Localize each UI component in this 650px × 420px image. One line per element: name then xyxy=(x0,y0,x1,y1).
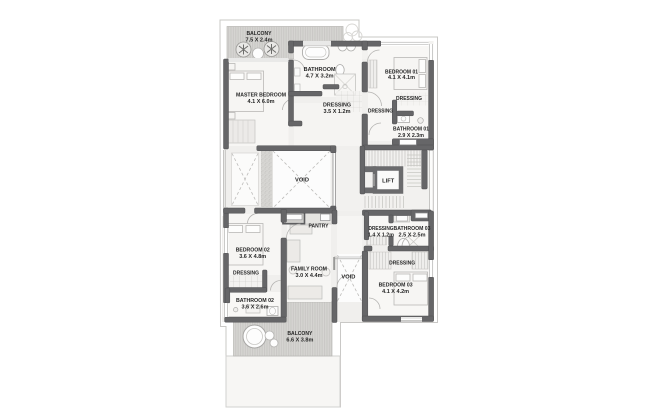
svg-text:VOID: VOID xyxy=(341,275,355,281)
svg-text:BEDROOM 03: BEDROOM 03 xyxy=(379,283,413,289)
svg-text:3.6 X 4.8m: 3.6 X 4.8m xyxy=(239,254,266,260)
svg-text:DRESSING: DRESSING xyxy=(369,226,394,232)
svg-text:1.4 X 1.2m: 1.4 X 1.2m xyxy=(368,233,394,239)
svg-text:3.0 X 4.4m: 3.0 X 4.4m xyxy=(296,273,323,279)
svg-text:4.1 X 6.0m: 4.1 X 6.0m xyxy=(248,99,275,105)
svg-text:BALCONY: BALCONY xyxy=(287,331,312,337)
svg-text:BALCONY: BALCONY xyxy=(247,31,272,37)
svg-text:3.6 X 2.6m: 3.6 X 2.6m xyxy=(242,305,269,311)
svg-text:2.5 X 2.5m: 2.5 X 2.5m xyxy=(399,233,426,239)
svg-text:BATHROOM: BATHROOM xyxy=(304,67,336,73)
svg-text:BATHROOM 02: BATHROOM 02 xyxy=(236,298,274,304)
svg-text:DRESSING: DRESSING xyxy=(389,261,415,267)
svg-text:DRESSING: DRESSING xyxy=(368,109,393,115)
svg-text:6.6 X 3.8m: 6.6 X 3.8m xyxy=(286,338,313,344)
svg-text:BEDROOM 02: BEDROOM 02 xyxy=(236,248,270,254)
svg-text:DRESSING: DRESSING xyxy=(323,103,351,109)
svg-text:MASTER BEDROOM: MASTER BEDROOM xyxy=(236,93,286,99)
svg-text:DRESSING: DRESSING xyxy=(396,96,422,102)
svg-text:BATHROOM 03: BATHROOM 03 xyxy=(394,226,431,232)
svg-text:4.7 X 3.2m: 4.7 X 3.2m xyxy=(306,74,334,80)
svg-text:3.5 X 1.2m: 3.5 X 1.2m xyxy=(324,109,351,115)
svg-text:VOID: VOID xyxy=(295,178,309,184)
svg-text:7.5 X 2.4m: 7.5 X 2.4m xyxy=(246,38,273,44)
svg-text:2.9 X 2.3m: 2.9 X 2.3m xyxy=(398,133,424,139)
svg-text:DRESSING: DRESSING xyxy=(233,271,259,277)
svg-text:FAMILY ROOM: FAMILY ROOM xyxy=(291,267,327,273)
svg-text:LIFT: LIFT xyxy=(382,179,395,185)
svg-text:4.1 X 4.1m: 4.1 X 4.1m xyxy=(388,75,415,81)
svg-text:BATHROOM 01: BATHROOM 01 xyxy=(393,127,429,133)
svg-text:PANTRY: PANTRY xyxy=(309,224,329,230)
svg-text:4.1 X 4.2m: 4.1 X 4.2m xyxy=(382,289,409,295)
